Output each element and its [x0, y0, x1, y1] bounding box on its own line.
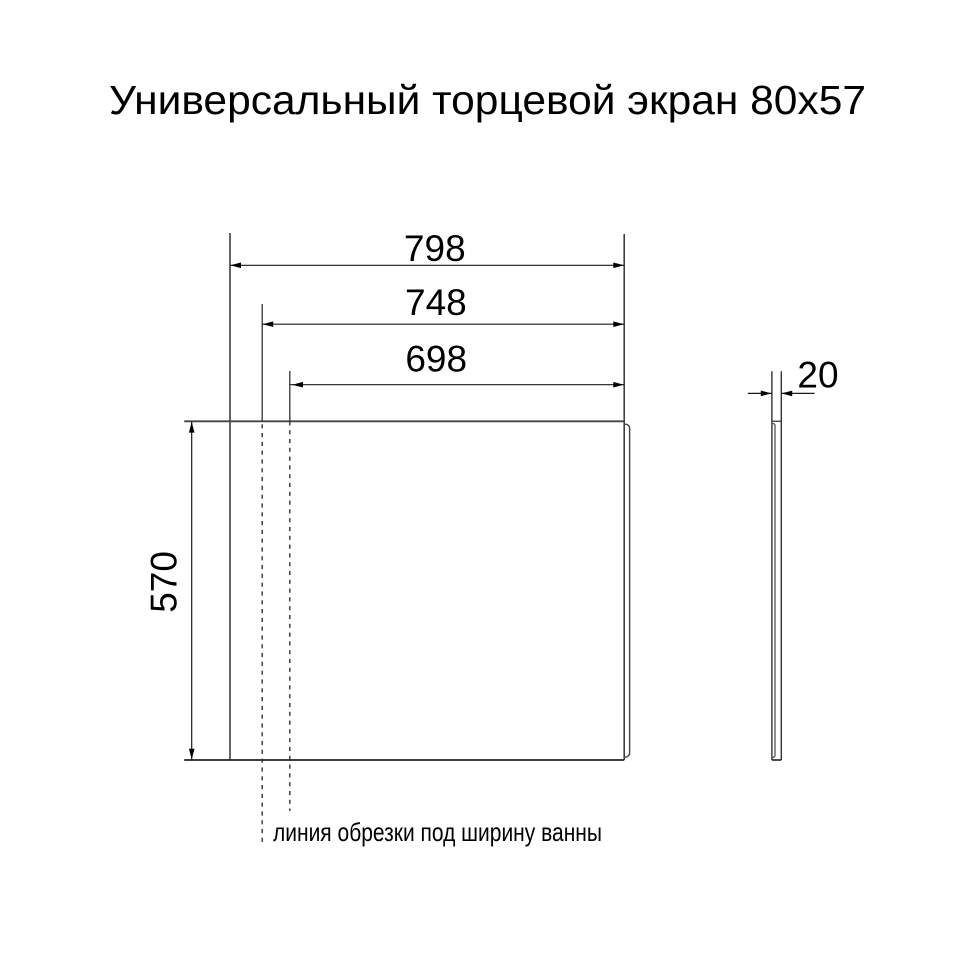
svg-text:570: 570	[143, 551, 184, 613]
svg-text:линия обрезки под ширину ванны: линия обрезки под ширину ванны	[273, 817, 602, 847]
svg-text:20: 20	[797, 355, 838, 396]
svg-text:798: 798	[404, 228, 466, 269]
svg-text:748: 748	[405, 282, 467, 323]
svg-text:Универсальный торцевой экран 8: Универсальный торцевой экран 80x57	[109, 77, 866, 123]
svg-text:698: 698	[405, 338, 467, 379]
